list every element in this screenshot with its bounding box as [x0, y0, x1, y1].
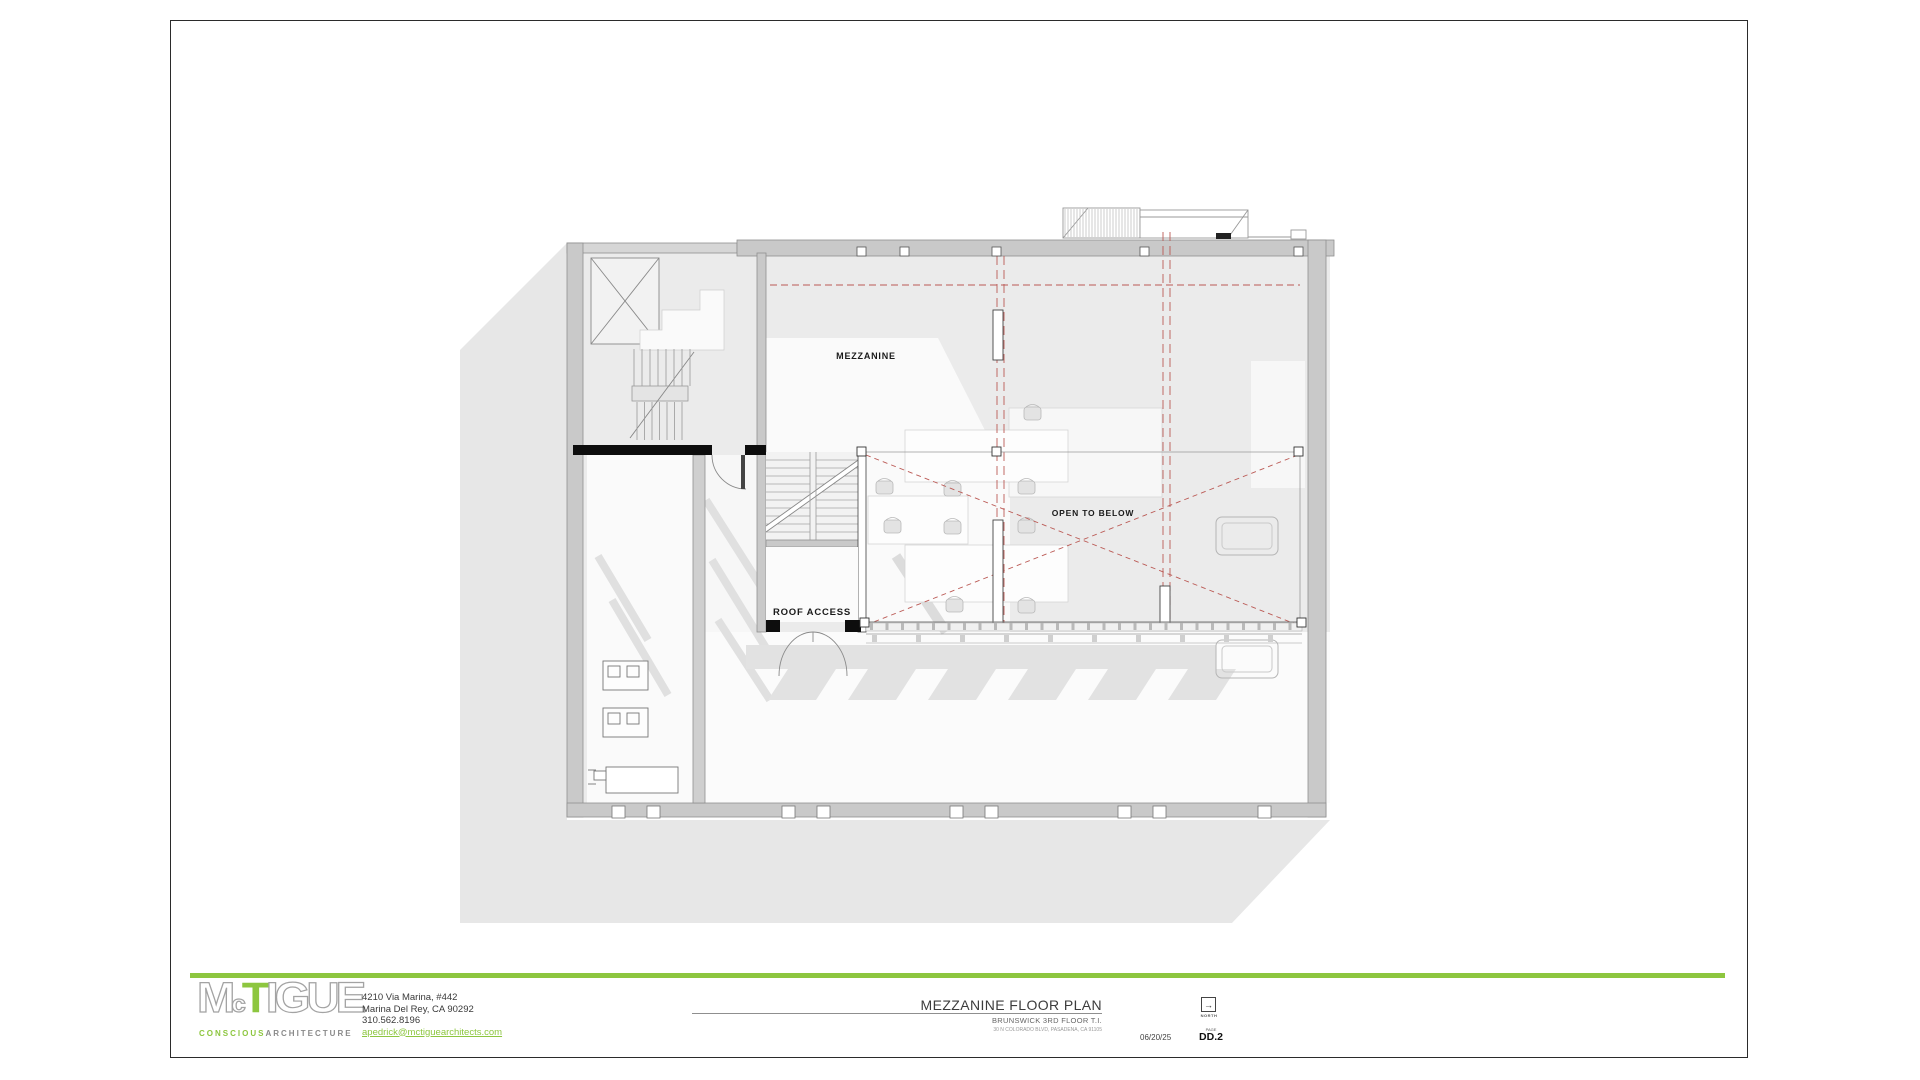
- firm-address-line1: 4210 Via Marina, #442: [362, 992, 502, 1004]
- logo-letters: IGUE: [266, 973, 362, 1021]
- north-label: NORTH: [1196, 1013, 1222, 1018]
- rooftop-equipment: [1063, 208, 1306, 239]
- firm-tagline: CONSCIOUS ARCHITECTURE: [199, 1029, 347, 1038]
- label-mezzanine: MEZZANINE: [836, 351, 896, 361]
- firm-phone: 310.562.8196: [362, 1015, 502, 1027]
- sheet-canvas: MEZZANINE OPEN TO BELOW ROOF ACCESS McTI…: [0, 0, 1920, 1080]
- logo-letter-green-t: T: [242, 973, 266, 1021]
- north-arrow-icon: →: [1201, 997, 1216, 1012]
- label-roof-access: ROOF ACCESS: [773, 607, 851, 618]
- firm-address-line2: Marina Del Rey, CA 90292: [362, 1004, 502, 1016]
- floor-plan-drawing: MEZZANINE OPEN TO BELOW ROOF ACCESS: [0, 0, 1920, 1080]
- north-arrow-glyph: →: [1204, 1000, 1213, 1010]
- titleblock-accent-line: [190, 973, 1725, 978]
- project-name: BRUNSWICK 3RD FLOOR T.I.: [800, 1016, 1102, 1025]
- project-address: 30 N COLORADO BLVD, PASADENA, CA 91105: [800, 1027, 1102, 1033]
- drawing-date: 06/20/25: [1140, 1033, 1180, 1042]
- drawing-title: MEZZANINE FLOOR PLAN: [800, 997, 1102, 1013]
- firm-logo: McTIGUE: [197, 976, 362, 1018]
- roof-shadow-band: [746, 645, 1216, 669]
- firm-email-link[interactable]: apedrick@mctiguearchitects.com: [362, 1027, 502, 1038]
- sheet-number: DD.2: [1192, 1031, 1230, 1043]
- tagline-conscious: CONSCIOUS: [199, 1029, 265, 1038]
- logo-letter: c: [231, 990, 241, 1018]
- firm-contact-block: 4210 Via Marina, #442 Marina Del Rey, CA…: [362, 992, 502, 1038]
- logo-letter: M: [197, 973, 231, 1021]
- label-open-to-below: OPEN TO BELOW: [1052, 508, 1135, 518]
- tagline-architecture: ARCHITECTURE: [265, 1029, 352, 1038]
- drawing-title-block: MEZZANINE FLOOR PLAN BRUNSWICK 3RD FLOOR…: [800, 997, 1102, 1033]
